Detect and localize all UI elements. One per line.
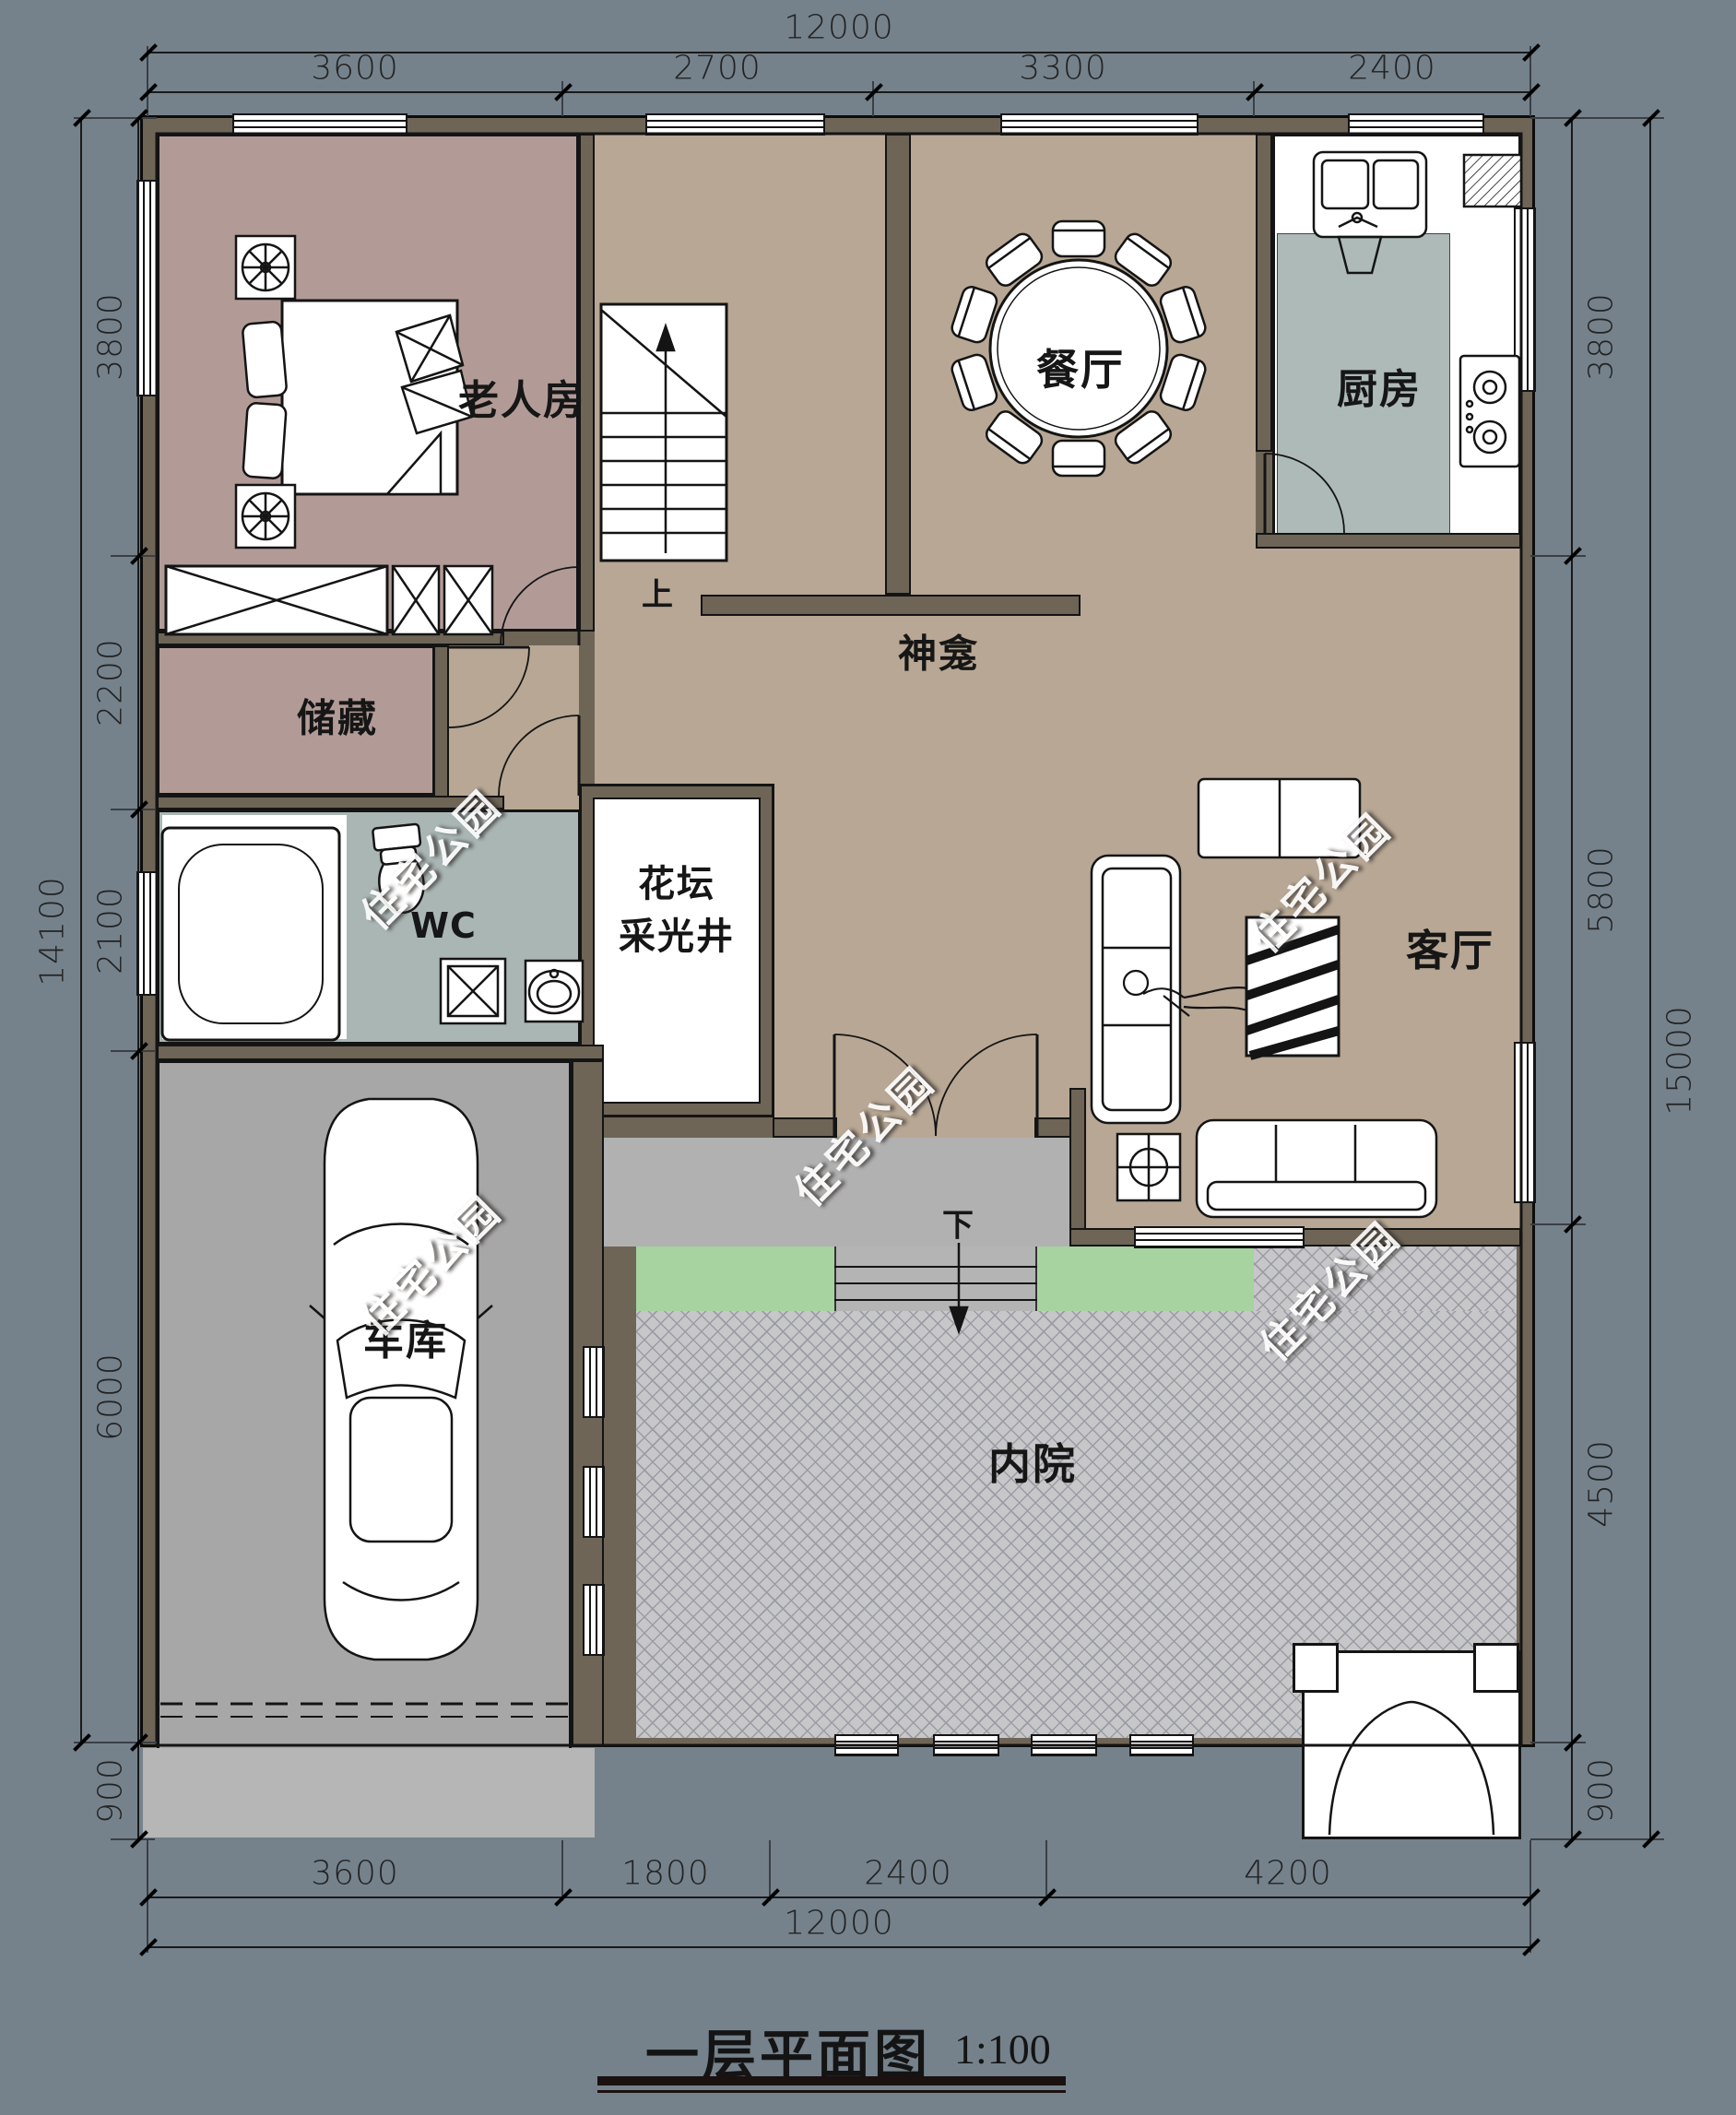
label-kitchen: 厨房: [1337, 356, 1422, 415]
dim-line-right-segments: [1571, 118, 1573, 1839]
dim-bottom-seg-4: 4200: [1244, 1855, 1332, 1893]
floor-plan-canvas: 老人房 餐厅 厨房 神龛 储藏 WC 花坛 采光井 客厅 车库 内院 上 下 住…: [0, 0, 1736, 2115]
dim-ext: [111, 809, 155, 810]
dim-ext: [1045, 1840, 1047, 1901]
label-storage: 储藏: [297, 688, 378, 744]
dim-top-seg-4: 2400: [1348, 50, 1436, 88]
dim-ext: [74, 117, 157, 119]
dim-left-total: 14100: [34, 876, 72, 987]
car: [310, 1099, 492, 1660]
dim-bottom-seg-2: 1800: [621, 1855, 710, 1893]
dim-left-seg-1: 3800: [92, 292, 130, 381]
garage-door-dashed: [160, 1704, 570, 1717]
dim-line-bottom-segments: [148, 1896, 1530, 1898]
door-bedroom: [501, 567, 579, 645]
label-lightwell-2: 采光井: [619, 906, 735, 960]
kitchen-stove: [1460, 356, 1519, 467]
nightstand-fan-north: [236, 236, 295, 299]
dim-ext: [1253, 81, 1255, 116]
kitchen-hatch-counter: [1464, 155, 1521, 207]
dim-ext: [74, 1742, 157, 1743]
dim-bottom-seg-1: 3600: [311, 1855, 399, 1893]
furniture-overlay: [0, 0, 1736, 2115]
dim-ext: [111, 1050, 155, 1052]
shower-tray: [441, 959, 505, 1023]
dim-line-bottom-total: [148, 1946, 1530, 1948]
title-underline-thin: [597, 2090, 1066, 2093]
label-lightwell-1: 花坛: [638, 854, 715, 907]
door-kitchen: [1265, 454, 1344, 533]
dim-left-seg-2: 2200: [92, 638, 130, 727]
staircase: [601, 304, 726, 561]
dim-ext: [561, 1840, 563, 1901]
dim-top-seg-3: 3300: [1019, 50, 1107, 88]
dim-right-seg-2: 5800: [1583, 845, 1621, 934]
dim-ext: [872, 81, 874, 116]
bed: [242, 301, 472, 494]
entry-steps: [834, 1243, 1037, 1331]
label-steps-down: 下: [942, 1200, 975, 1246]
dim-line-top-segments: [148, 91, 1530, 93]
door-wc: [499, 715, 579, 796]
dim-right-total: 15000: [1661, 1005, 1699, 1116]
dim-right-seg-3: 4500: [1583, 1439, 1621, 1528]
label-courtyard: 内院: [988, 1431, 1077, 1492]
dim-ext: [1530, 117, 1664, 119]
dim-ext: [1530, 1223, 1586, 1225]
dim-bottom-seg-3: 2400: [864, 1855, 952, 1893]
label-living: 客厅: [1406, 917, 1494, 978]
label-elder-room: 老人房: [458, 367, 585, 426]
sofa-south: [1197, 1120, 1436, 1217]
label-shrine: 神龛: [898, 623, 979, 679]
dim-ext: [111, 1838, 155, 1840]
label-dining: 餐厅: [1036, 337, 1125, 397]
dim-ext: [769, 1840, 771, 1901]
nightstand-fan-south: [236, 485, 295, 548]
dim-line-left-total: [80, 118, 82, 1743]
dim-top-seg-2: 2700: [673, 50, 762, 88]
label-wc: WC: [410, 905, 477, 946]
dim-ext: [561, 81, 563, 116]
dim-ext: [111, 555, 155, 557]
dim-right-seg-4: 900: [1583, 1757, 1621, 1824]
dim-left-seg-4: 6000: [92, 1353, 130, 1441]
dim-ext: [1530, 1742, 1586, 1743]
dim-line-left-segments: [137, 118, 139, 1839]
dim-top-seg-1: 3600: [311, 50, 399, 88]
bathtub: [162, 828, 339, 1040]
door-corridor: [449, 647, 529, 727]
wash-basin: [526, 961, 583, 1022]
side-table: [1117, 1134, 1180, 1200]
dim-line-right-total: [1649, 118, 1651, 1839]
dim-ext: [1530, 1838, 1664, 1840]
dim-ext: [1530, 555, 1586, 557]
dim-left-seg-3: 2100: [92, 886, 130, 975]
dim-left-seg-5: 900: [92, 1757, 130, 1824]
title-underline-thick: [597, 2076, 1066, 2085]
dim-top-total: 12000: [784, 9, 894, 47]
wardrobe: [166, 566, 492, 634]
drawing-scale: 1:100: [954, 2025, 1051, 2074]
dim-right-seg-1: 3800: [1583, 292, 1621, 381]
dim-bottom-total: 12000: [784, 1905, 894, 1943]
kitchen-sink: [1314, 152, 1426, 273]
label-stairs-up: 上: [642, 570, 675, 615]
gate-arch: [1329, 1702, 1494, 1835]
